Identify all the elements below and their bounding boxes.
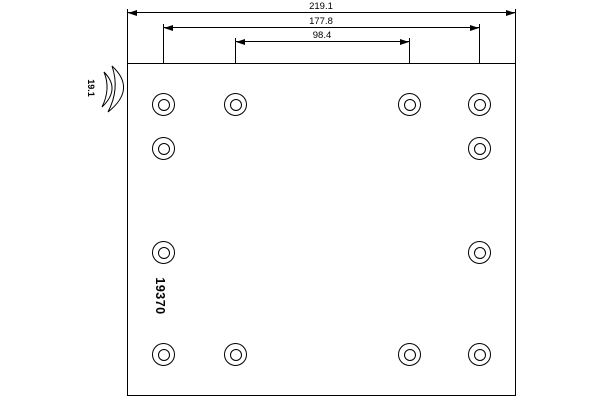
rivet-hole-bore	[404, 349, 416, 361]
rivet-hole	[152, 137, 175, 160]
rivet-hole-bore	[230, 99, 242, 111]
cross-section-arc-thin	[102, 72, 112, 107]
technical-drawing: 219.1 177.8 98.4 19370 19.1	[0, 0, 600, 400]
dimension-line	[127, 12, 516, 13]
dimension-line	[163, 27, 480, 28]
rivet-hole-bore	[474, 143, 486, 155]
rivet-hole-bore	[158, 247, 170, 259]
rivet-hole	[224, 93, 247, 116]
arrow-left-icon	[236, 39, 245, 45]
rivet-hole-bore	[404, 99, 416, 111]
rivet-hole	[152, 241, 175, 264]
rivet-hole-bore	[158, 143, 170, 155]
part-number: 19370	[153, 277, 167, 314]
rivet-hole-bore	[230, 349, 242, 361]
rivet-hole-bore	[158, 349, 170, 361]
rivet-hole	[468, 93, 491, 116]
dimension-line	[235, 41, 410, 42]
rivet-hole-bore	[158, 99, 170, 111]
rivet-hole	[152, 93, 175, 116]
rivet-hole-bore	[474, 349, 486, 361]
rivet-hole	[224, 343, 247, 366]
rivet-hole-bore	[474, 247, 486, 259]
arrow-left-icon	[164, 25, 173, 31]
dimension-value: 98.4	[313, 31, 332, 41]
rivet-hole	[152, 343, 175, 366]
arrow-right-icon	[470, 25, 479, 31]
lining-cross-section-icon	[95, 60, 135, 116]
arrow-right-icon	[400, 39, 409, 45]
extension-line	[515, 9, 516, 63]
rivet-hole	[468, 137, 491, 160]
extension-line	[127, 9, 128, 63]
dimension-value: 219.1	[309, 2, 333, 12]
thickness-label: 19.1	[86, 79, 96, 97]
rivet-hole	[468, 241, 491, 264]
rivet-hole	[398, 343, 421, 366]
dimension-value: 177.8	[309, 17, 333, 27]
brake-lining-plate	[127, 63, 516, 396]
rivet-hole-bore	[474, 99, 486, 111]
rivet-hole	[398, 93, 421, 116]
rivet-hole	[468, 343, 491, 366]
arrow-left-icon	[128, 10, 137, 16]
arrow-right-icon	[506, 10, 515, 16]
